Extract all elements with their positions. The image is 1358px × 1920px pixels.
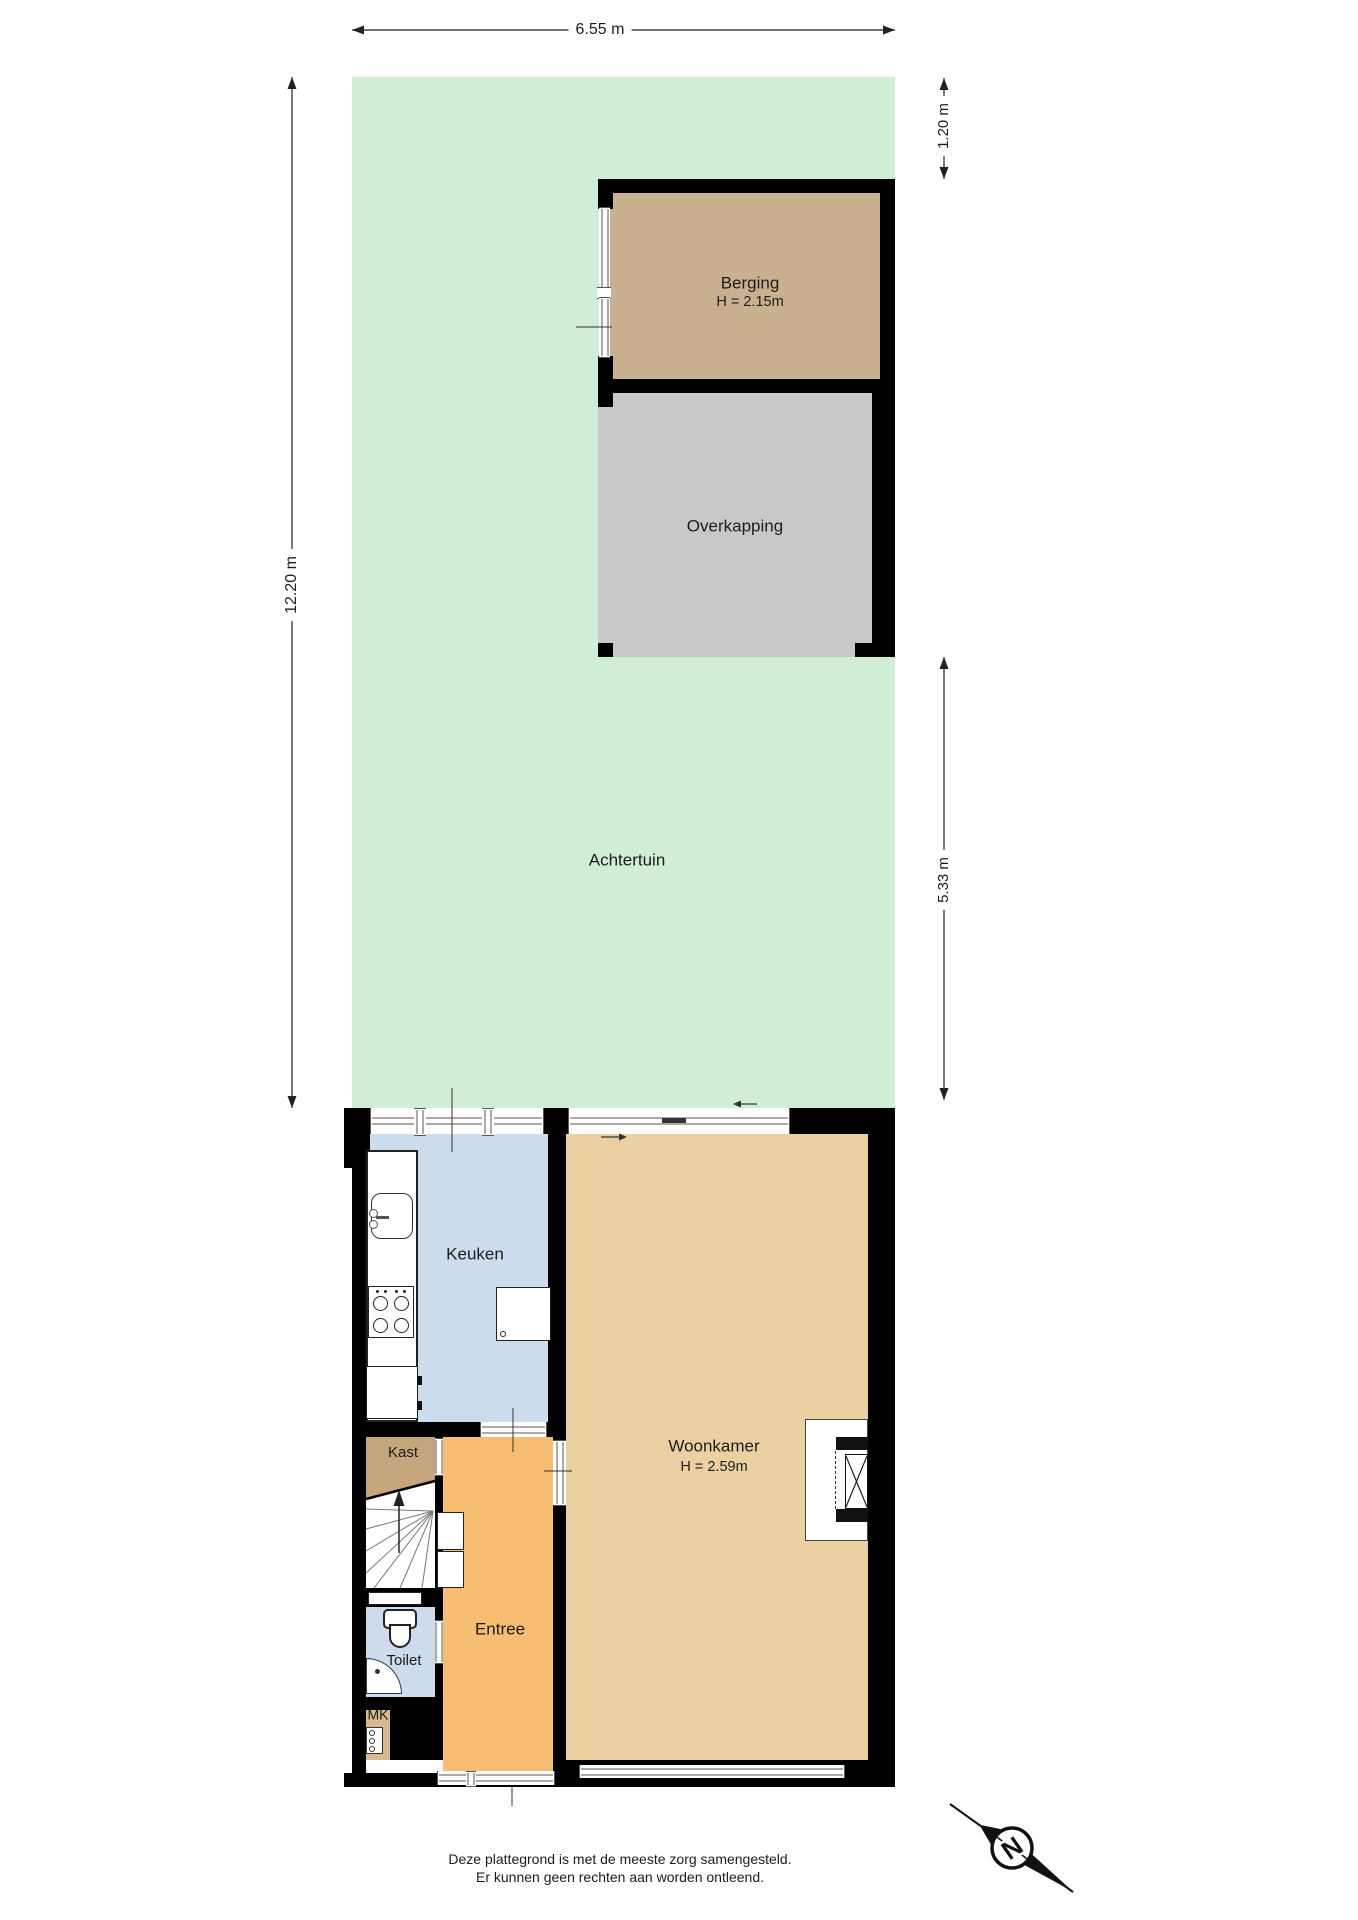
- berging-window: [599, 297, 610, 358]
- sliding-door-panel: [662, 1118, 686, 1123]
- overkapping-label: Overkapping: [687, 518, 783, 537]
- woonkamer-height-label: H = 2.59m: [680, 1460, 747, 1476]
- chimney-dashed-line: [835, 1451, 836, 1509]
- entree-label: Entree: [475, 1621, 525, 1640]
- wall: [598, 643, 613, 657]
- woonkamer-window: [579, 1765, 845, 1778]
- berging-height-label: H = 2.15m: [716, 295, 783, 311]
- fridge: [366, 1366, 418, 1419]
- dimension-left: 12.20 m: [283, 549, 301, 621]
- toilet-bowl: [389, 1624, 411, 1648]
- wall: [598, 393, 613, 407]
- burner-dot: [384, 1290, 387, 1293]
- burner: [373, 1296, 388, 1311]
- disclaimer-line-2: Er kunnen geen rechten aan worden ontlee…: [476, 1869, 764, 1885]
- window-mullion: [482, 1108, 494, 1136]
- dimension-top: 6.55 m: [569, 21, 632, 39]
- front-door-mullion: [466, 1771, 476, 1787]
- meter-dial: [369, 1746, 375, 1752]
- wall: [855, 643, 872, 657]
- floor-plan: N Achtertuin Berging H = 2.15m Overkappi…: [0, 0, 1358, 1920]
- chimney-flue: [845, 1454, 868, 1509]
- dimension-right-lower: 5.33 m: [936, 850, 953, 910]
- wall: [542, 1108, 568, 1134]
- dimension-right-upper: 1.20 m: [936, 96, 953, 156]
- wall: [872, 393, 895, 657]
- kast-label: Kast: [388, 1445, 418, 1462]
- meter-dial: [369, 1730, 375, 1736]
- entree-woonkamer-door: [553, 1440, 566, 1506]
- entree-side-window: [435, 1438, 443, 1476]
- faucet-spout: [376, 1216, 389, 1219]
- burner-dot: [403, 1290, 406, 1293]
- dishwasher: [496, 1287, 551, 1341]
- wall: [352, 1422, 480, 1437]
- chimney-bar: [836, 1509, 868, 1522]
- garden-label: Achtertuin: [589, 852, 666, 871]
- wall: [545, 1422, 566, 1437]
- toilet-shelf: [368, 1592, 422, 1605]
- stairs-closet-door: [437, 1512, 464, 1550]
- disclaimer-line-1: Deze plattegrond is met de meeste zorg s…: [448, 1851, 791, 1867]
- entree-floor: [443, 1437, 553, 1773]
- woonkamer-label: Woonkamer: [668, 1438, 759, 1457]
- berging-label: Berging: [721, 275, 780, 294]
- wall: [868, 1108, 895, 1787]
- burner: [373, 1318, 388, 1333]
- keuken-entree-door: [480, 1422, 547, 1437]
- chimney-bar: [836, 1437, 868, 1450]
- burner: [394, 1318, 409, 1333]
- kitchen-sink: [371, 1193, 413, 1239]
- stairs-area: [366, 1481, 435, 1588]
- toilet-door: [435, 1620, 443, 1664]
- dishwasher-knob: [500, 1331, 506, 1337]
- berging-window: [599, 207, 610, 289]
- kitchen-window: [370, 1108, 544, 1134]
- stairs-closet-door: [437, 1551, 464, 1588]
- burner: [394, 1296, 409, 1311]
- burner-dot: [376, 1290, 379, 1293]
- wall: [352, 1697, 443, 1710]
- compass-rose: N: [935, 1795, 1095, 1905]
- mk-label: MK: [368, 1707, 389, 1722]
- wall: [598, 179, 895, 193]
- meter-box: [366, 1727, 383, 1754]
- window-mullion: [414, 1108, 426, 1136]
- faucet-dot: [375, 1669, 380, 1674]
- hinge: [417, 1376, 422, 1385]
- wall: [548, 1134, 566, 1437]
- wall: [598, 179, 613, 209]
- keuken-label: Keuken: [446, 1246, 504, 1265]
- toilet-label: Toilet: [386, 1653, 421, 1670]
- wall: [352, 1108, 366, 1787]
- wall: [390, 1710, 443, 1760]
- wall: [880, 179, 895, 393]
- meter-dial: [369, 1738, 375, 1744]
- front-door: [437, 1771, 555, 1785]
- hinge: [417, 1401, 422, 1410]
- stove: [368, 1286, 414, 1338]
- burner-dot: [395, 1290, 398, 1293]
- wall: [598, 379, 895, 393]
- faucet-icon: [369, 1220, 378, 1229]
